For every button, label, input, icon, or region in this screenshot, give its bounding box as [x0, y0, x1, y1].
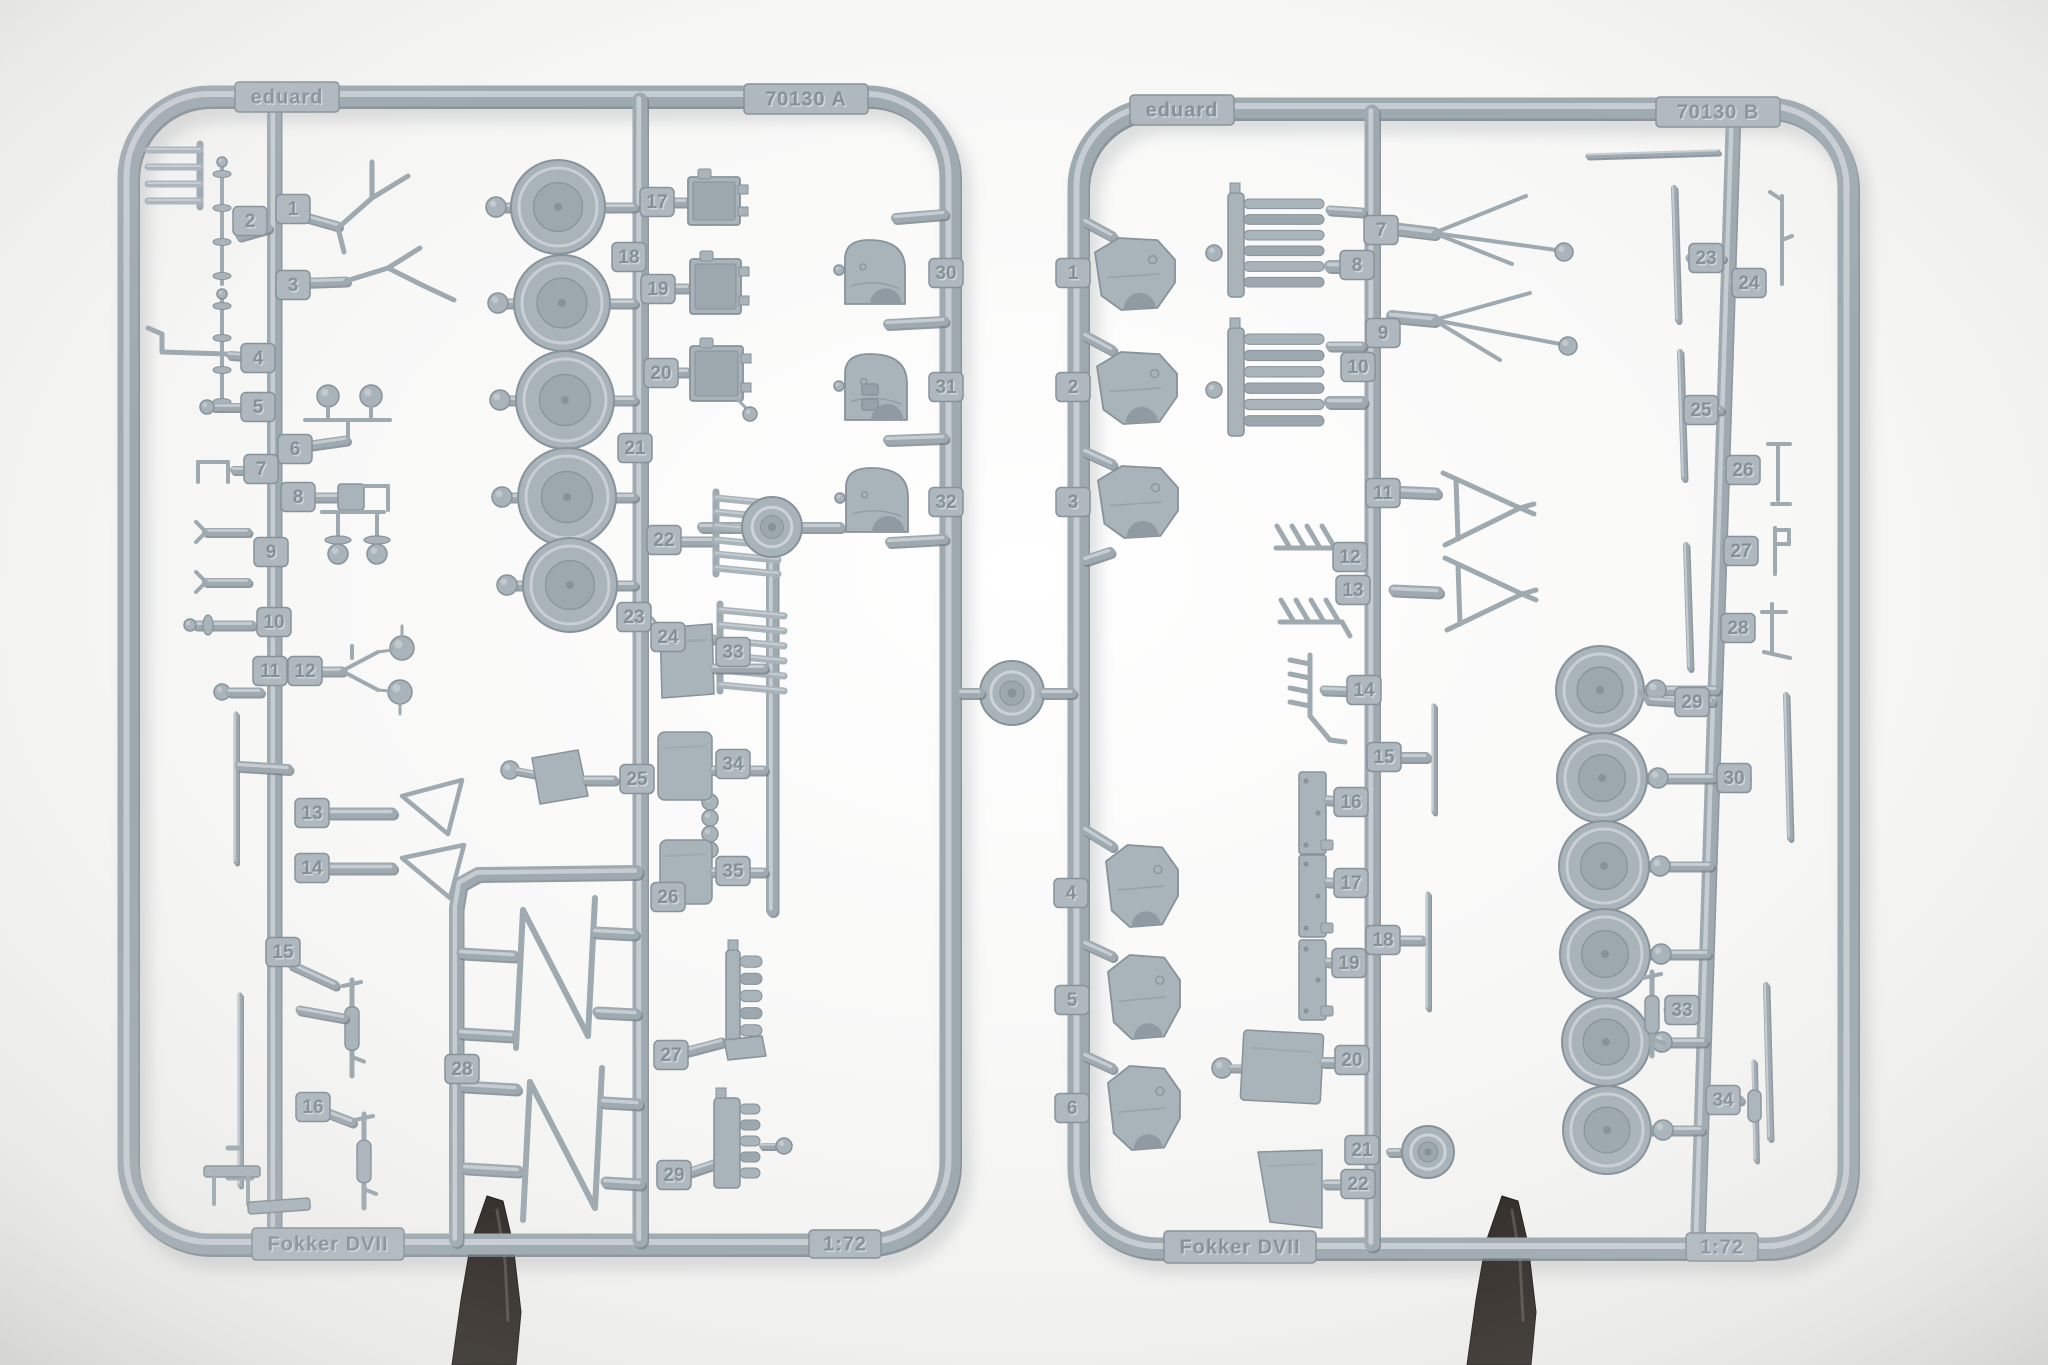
brand-tag-code: 70130 A70130 A: [744, 84, 868, 114]
part-tag-10: 1010: [1341, 353, 1375, 382]
svg-text:1:72: 1:72: [823, 1234, 867, 1256]
svg-text:20: 20: [1341, 1050, 1362, 1071]
part-ball: [834, 381, 844, 391]
svg-text:16: 16: [302, 1097, 323, 1118]
part-tag-25: 2525: [620, 765, 654, 794]
part-rect: [862, 384, 878, 395]
part-runner: [229, 691, 262, 695]
part-tag-21: 2121: [1345, 1136, 1379, 1165]
svg-text:8: 8: [1352, 255, 1363, 276]
part-runner: [1329, 209, 1364, 215]
svg-text:1: 1: [288, 199, 299, 220]
part-tag-13: 1313: [295, 799, 329, 828]
part-tag-29: 2929: [1675, 688, 1709, 717]
brand-tag-kit: Fokker DVIIFokker DVII: [1164, 1231, 1316, 1263]
svg-text:7: 7: [256, 459, 267, 480]
svg-text:31: 31: [935, 377, 957, 398]
part-runner: [679, 540, 714, 544]
svg-text:22: 22: [653, 530, 674, 551]
part-runner: [461, 952, 516, 959]
part-tag-6: 66: [278, 435, 312, 464]
svg-text:6: 6: [1067, 1098, 1078, 1119]
part-tag-34: 3434: [1706, 1086, 1740, 1115]
svg-text:9: 9: [266, 542, 277, 563]
svg-text:eduard: eduard: [251, 87, 324, 109]
part-ball: [776, 1138, 792, 1154]
part-rad: [690, 338, 751, 401]
svg-text:11: 11: [260, 661, 281, 682]
part-ball: [388, 680, 412, 704]
part-runner: [1043, 692, 1074, 696]
part-tag-24: 2424: [651, 623, 685, 652]
part-line: [1433, 705, 1436, 815]
svg-text:34: 34: [722, 754, 744, 775]
part-runner: [205, 581, 250, 585]
part-ball: [1206, 245, 1222, 261]
brand-tag-manufacturer: eduardeduard: [1130, 95, 1234, 125]
part-tag-1: 11: [276, 195, 310, 224]
svg-text:Fokker DVII: Fokker DVII: [1179, 1237, 1300, 1259]
part-ellipse: [325, 536, 351, 544]
svg-text:19: 19: [1338, 953, 1359, 974]
part-tag-21: 2121: [618, 434, 652, 463]
brand-tag-kit: Fokker DVIIFokker DVII: [252, 1228, 404, 1260]
part-tag-25: 2525: [1684, 396, 1718, 425]
part-tag-7: 77: [244, 455, 278, 484]
svg-text:1: 1: [1068, 263, 1079, 284]
part-tag-11: 1111: [1366, 479, 1400, 508]
part-tag-4: 44: [241, 344, 275, 373]
part-rect: [658, 732, 712, 800]
part-tag-11: 1111: [253, 657, 287, 686]
svg-text:15: 15: [272, 942, 294, 963]
part-hub: [742, 497, 802, 557]
svg-text:24: 24: [657, 627, 679, 648]
part-tag-32: 3232: [929, 488, 963, 517]
svg-text:21: 21: [1351, 1140, 1373, 1161]
part-runner: [961, 692, 982, 696]
part-runner: [761, 1145, 778, 1149]
part-runner: [239, 765, 290, 772]
svg-text:16: 16: [1340, 792, 1361, 813]
svg-text:21: 21: [624, 438, 646, 459]
svg-text:35: 35: [722, 861, 744, 882]
svg-text:10: 10: [263, 612, 284, 633]
svg-text:30: 30: [935, 263, 956, 284]
part-tag-30: 3030: [929, 259, 963, 288]
svg-text:6: 6: [290, 439, 301, 460]
part-tag-27: 2727: [654, 1041, 688, 1070]
svg-text:28: 28: [451, 1059, 472, 1080]
part-tag-15: 1515: [1367, 743, 1401, 772]
svg-text:25: 25: [626, 769, 648, 790]
part-tag-28: 2828: [445, 1055, 479, 1084]
part-runner: [1389, 1151, 1402, 1155]
part-tag-14: 1414: [1347, 676, 1381, 705]
part-tag-27: 2727: [1724, 537, 1758, 566]
part-line: [235, 713, 238, 865]
part-runner: [603, 1101, 640, 1107]
part-tag-22: 2222: [1341, 1170, 1375, 1199]
part-runner: [585, 779, 616, 783]
svg-text:23: 23: [1695, 248, 1716, 269]
part-tag-35: 3535: [716, 857, 750, 886]
part-ball: [743, 407, 757, 421]
svg-text:25: 25: [1690, 400, 1712, 421]
svg-text:4: 4: [253, 348, 264, 369]
part-runner: [895, 213, 946, 221]
svg-text:34: 34: [1712, 1090, 1734, 1111]
part-runner: [889, 538, 946, 545]
part-ball: [1559, 337, 1577, 355]
svg-text:23: 23: [623, 607, 644, 628]
svg-text:27: 27: [1730, 541, 1751, 562]
part-tag-33: 3333: [716, 638, 750, 667]
sprue-photo: 1122334455667788991010111112121313141415…: [0, 0, 2048, 1365]
part-tag-23: 2323: [1689, 244, 1723, 273]
part-ball: [1555, 243, 1573, 261]
part-fus: [1098, 466, 1178, 538]
part-runner: [771, 557, 774, 913]
svg-text:1:72: 1:72: [1700, 1237, 1744, 1259]
part-engine: [1228, 183, 1324, 297]
part-fus: [1095, 238, 1175, 310]
part-fus: [1097, 352, 1177, 424]
part-tag-16: 1616: [296, 1093, 330, 1122]
svg-text:20: 20: [650, 363, 671, 384]
part-tag-7: 77: [1364, 216, 1398, 245]
svg-text:18: 18: [1372, 930, 1393, 951]
part-poly: [532, 750, 588, 804]
part-runner: [205, 531, 250, 535]
part-ball: [317, 385, 339, 407]
part-fus: [1106, 845, 1178, 927]
svg-text:17: 17: [1340, 873, 1361, 894]
part-runner: [887, 437, 946, 443]
part-rect: [862, 399, 878, 410]
svg-text:22: 22: [1347, 1174, 1368, 1195]
part-runner: [801, 526, 842, 530]
part-ball: [1206, 382, 1222, 398]
part-poly: [724, 1036, 766, 1060]
svg-text:Fokker DVII: Fokker DVII: [267, 1234, 388, 1256]
part-tag-22: 2222: [647, 526, 681, 555]
part-ball: [367, 544, 387, 564]
svg-text:5: 5: [253, 397, 264, 418]
part-runner: [329, 812, 394, 816]
svg-text:15: 15: [1373, 747, 1395, 768]
svg-text:12: 12: [1339, 547, 1360, 568]
photo-stage: 1122334455667788991010111112121313141415…: [0, 0, 2048, 1365]
part-tag-14: 1414: [295, 854, 329, 883]
svg-text:18: 18: [618, 247, 639, 268]
svg-text:12: 12: [294, 661, 315, 682]
svg-text:13: 13: [1342, 580, 1363, 601]
part-tag-12: 1212: [1333, 543, 1367, 572]
part-tag-1: 11: [1056, 259, 1090, 288]
part-runner: [595, 931, 636, 937]
part-tag-16: 1616: [1334, 788, 1368, 817]
part-runner: [1329, 401, 1364, 405]
svg-text:9: 9: [1378, 323, 1389, 344]
svg-text:3: 3: [288, 275, 299, 296]
part-tag-10: 1010: [257, 608, 291, 637]
part-rad: [690, 251, 749, 314]
part-cowl: [845, 240, 905, 304]
part-tag-5: 55: [1055, 986, 1089, 1015]
part-tag-26: 2626: [1726, 456, 1760, 485]
part-cowl: [846, 468, 908, 532]
part-line: [1427, 893, 1430, 1011]
part-tag-9: 99: [1366, 319, 1400, 348]
part-tag-9: 99: [254, 538, 288, 567]
part-rect: [1748, 1090, 1761, 1122]
part-runner: [463, 1085, 518, 1092]
part-tag-33: 3333: [1665, 996, 1699, 1025]
part-tag-17: 1717: [1334, 869, 1368, 898]
part-tag-23: 2323: [617, 603, 651, 632]
part-tag-15: 1515: [266, 938, 300, 967]
svg-text:2: 2: [1068, 377, 1079, 398]
part-tag-20: 2020: [644, 359, 678, 388]
part-tag-31: 3131: [929, 373, 963, 402]
svg-text:3: 3: [1068, 492, 1079, 513]
svg-text:17: 17: [646, 192, 667, 213]
part-rect: [338, 484, 364, 510]
svg-text:29: 29: [1681, 692, 1702, 713]
part-tag-4: 44: [1054, 879, 1088, 908]
part-ellipse: [203, 615, 213, 635]
part-ball: [328, 544, 348, 564]
part-tag-17: 1717: [640, 188, 674, 217]
part-ellipse: [364, 536, 390, 544]
part-hub: [1402, 1126, 1454, 1178]
part-engine: [1228, 318, 1324, 436]
svg-text:13: 13: [301, 803, 322, 824]
part-tag-3: 33: [1056, 488, 1090, 517]
part-tag-8: 88: [1340, 251, 1374, 280]
part-tag-18: 1818: [612, 243, 646, 272]
svg-text:70130 B: 70130 B: [1677, 102, 1760, 124]
part-runner: [1329, 345, 1364, 349]
svg-text:33: 33: [722, 642, 743, 663]
part-rad: [688, 169, 748, 225]
part-tag-18: 1818: [1366, 926, 1400, 955]
part-fus: [1108, 955, 1180, 1039]
part-tag-2: 22: [233, 207, 267, 236]
brand-tag-code: 70130 B70130 B: [1656, 97, 1780, 127]
part-tag-3: 33: [276, 271, 310, 300]
part-tag-13: 1313: [1336, 576, 1370, 605]
part-ball: [702, 810, 718, 826]
svg-text:19: 19: [647, 279, 668, 300]
svg-text:8: 8: [293, 487, 304, 508]
part-runner: [461, 1032, 514, 1039]
part-tag-19: 1919: [641, 275, 675, 304]
part-ball: [200, 400, 214, 414]
svg-text:29: 29: [663, 1165, 684, 1186]
part-runner: [597, 1011, 638, 1017]
part-tag-12: 1212: [288, 657, 322, 686]
part-rect: [1240, 1030, 1324, 1104]
svg-text:11: 11: [1373, 483, 1394, 504]
part-ball: [835, 493, 845, 503]
part-ball: [834, 265, 844, 275]
part-runner: [517, 770, 536, 777]
svg-text:27: 27: [660, 1045, 681, 1066]
part-runner: [1393, 589, 1440, 595]
part-tag-20: 2020: [1335, 1046, 1369, 1075]
svg-text:2: 2: [245, 211, 256, 232]
brand-tag-manufacturer: eduardeduard: [235, 82, 339, 112]
part-tag-30: 3030: [1717, 764, 1751, 793]
svg-text:30: 30: [1723, 768, 1744, 789]
part-tag-29: 2929: [657, 1161, 691, 1190]
svg-text:14: 14: [301, 858, 323, 879]
svg-text:7: 7: [1376, 220, 1387, 241]
svg-text:5: 5: [1067, 990, 1078, 1011]
svg-text:14: 14: [1353, 680, 1375, 701]
svg-text:28: 28: [1727, 618, 1748, 639]
part-ball: [360, 385, 382, 407]
part-tag-19: 1919: [1332, 949, 1366, 978]
brand-tag-scale: 1:721:72: [1686, 1233, 1758, 1261]
part-tag-24: 2424: [1732, 269, 1766, 298]
part-tag-8: 88: [281, 483, 315, 512]
part-line: [239, 994, 242, 1188]
part-engine: [726, 940, 762, 1046]
part-ball: [390, 636, 414, 660]
part-tag-2: 22: [1056, 373, 1090, 402]
svg-text:24: 24: [1738, 273, 1760, 294]
svg-text:4: 4: [1066, 883, 1077, 904]
part-hub: [980, 661, 1044, 725]
part-rect: [204, 1166, 260, 1177]
part-tag-34: 3434: [716, 750, 750, 779]
part-tag-28: 2828: [1721, 614, 1755, 643]
part-tag-26: 2626: [651, 883, 685, 912]
part-runner: [329, 867, 394, 871]
svg-text:eduard: eduard: [1146, 100, 1219, 122]
part-runner: [605, 1181, 642, 1187]
svg-text:26: 26: [657, 887, 678, 908]
svg-text:10: 10: [1347, 357, 1368, 378]
part-tag-6: 66: [1055, 1094, 1089, 1123]
part-runner: [465, 1167, 520, 1174]
part-fus: [1108, 1066, 1180, 1150]
part-runner: [887, 320, 946, 327]
svg-text:70130 A: 70130 A: [765, 89, 847, 111]
svg-text:32: 32: [935, 492, 956, 513]
svg-text:26: 26: [1732, 460, 1753, 481]
part-ball: [184, 619, 196, 631]
brand-tag-scale: 1:721:72: [809, 1230, 881, 1258]
part-tag-5: 55: [241, 393, 275, 422]
svg-text:33: 33: [1671, 1000, 1692, 1021]
